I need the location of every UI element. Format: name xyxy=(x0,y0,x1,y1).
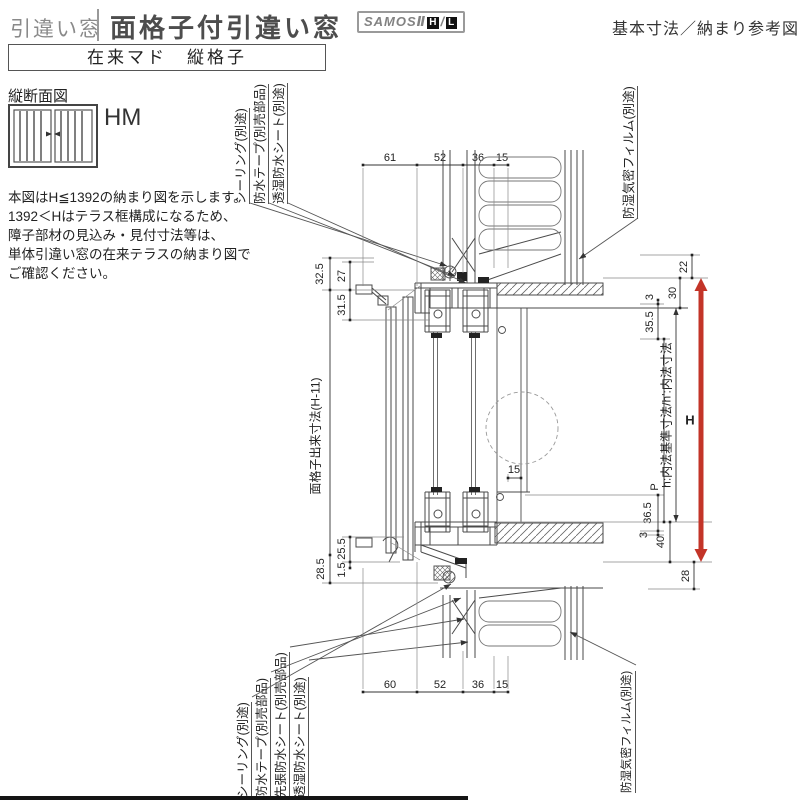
backer-rod-bottom xyxy=(443,571,455,583)
glazing-gasket xyxy=(469,333,480,338)
glazing-gasket xyxy=(469,487,480,492)
insulation-batts-bottom xyxy=(479,601,561,646)
interior-casing xyxy=(486,295,558,522)
interior-floor-board xyxy=(495,523,603,543)
bottom-wall xyxy=(440,586,603,660)
page-edge-bar xyxy=(0,796,468,800)
catalog-page: 引違い窓 面格子付引違い窓 SAMOSⅡH/L 基本寸法／納まり参考図 在来マド… xyxy=(0,0,800,800)
glazing-gasket xyxy=(431,487,442,492)
insulation-batts-top xyxy=(479,157,561,250)
extension-lines xyxy=(322,168,712,689)
head-seal-black xyxy=(478,277,489,283)
dimension-lines xyxy=(330,165,694,692)
face-grille xyxy=(356,285,420,562)
top-wall xyxy=(443,150,583,285)
dimension-ticks xyxy=(329,164,696,694)
interior-head-board xyxy=(497,283,603,295)
height-dimension-arrow xyxy=(695,278,708,562)
sash-sections xyxy=(425,290,488,532)
sill-seal-black xyxy=(455,558,467,564)
sill-frame xyxy=(415,522,497,578)
glazing-gasket xyxy=(431,333,442,338)
cross-section-drawing xyxy=(0,0,800,800)
